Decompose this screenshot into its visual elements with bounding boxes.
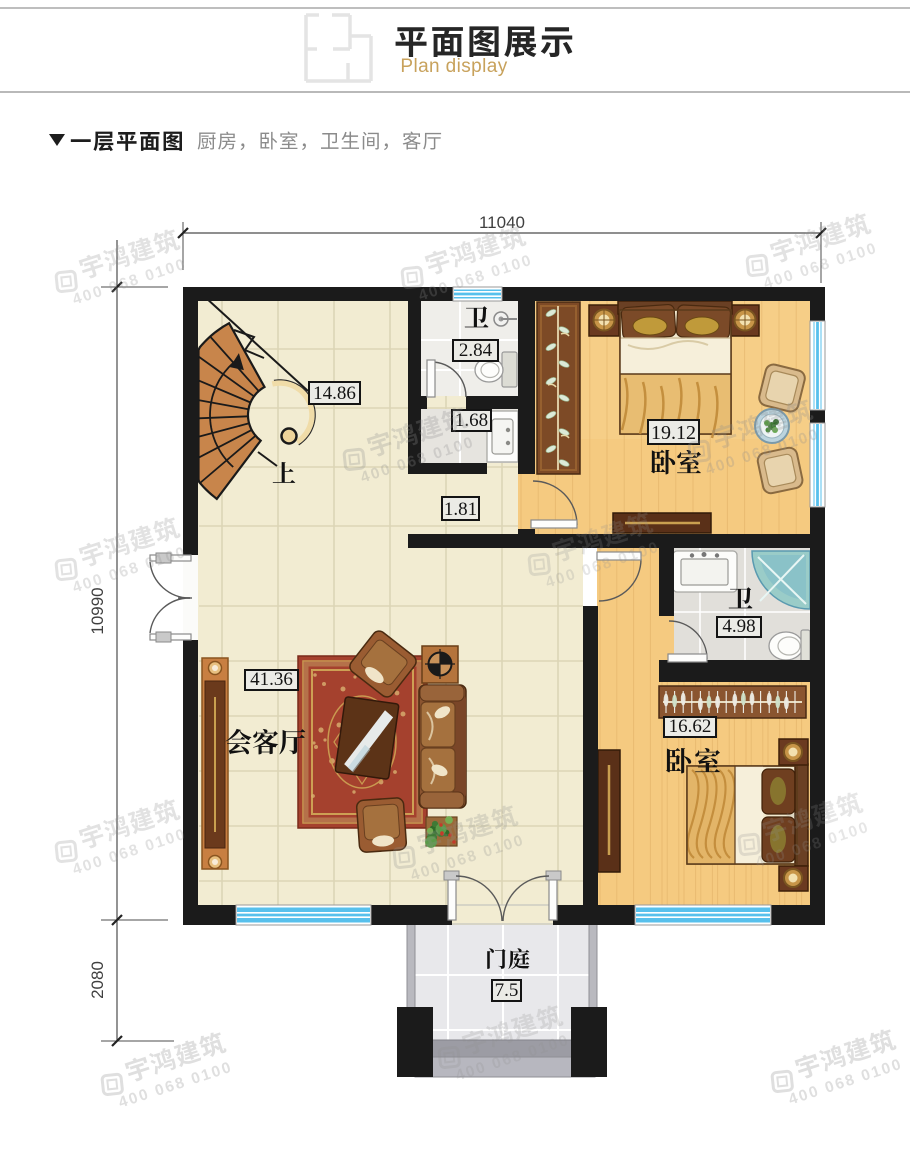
svg-text:10990: 10990 xyxy=(88,587,107,634)
svg-text:2.84: 2.84 xyxy=(459,340,493,361)
svg-text:Plan display: Plan display xyxy=(400,56,507,77)
svg-text:2080: 2080 xyxy=(88,961,107,999)
svg-text:19.12: 19.12 xyxy=(651,422,696,444)
svg-text:14.86: 14.86 xyxy=(313,383,356,404)
svg-text:41.36: 41.36 xyxy=(250,669,293,690)
svg-text:4.98: 4.98 xyxy=(722,616,755,637)
svg-text:16.62: 16.62 xyxy=(669,716,712,737)
svg-text:1.81: 1.81 xyxy=(444,499,477,520)
svg-text:7.5: 7.5 xyxy=(495,980,519,1001)
